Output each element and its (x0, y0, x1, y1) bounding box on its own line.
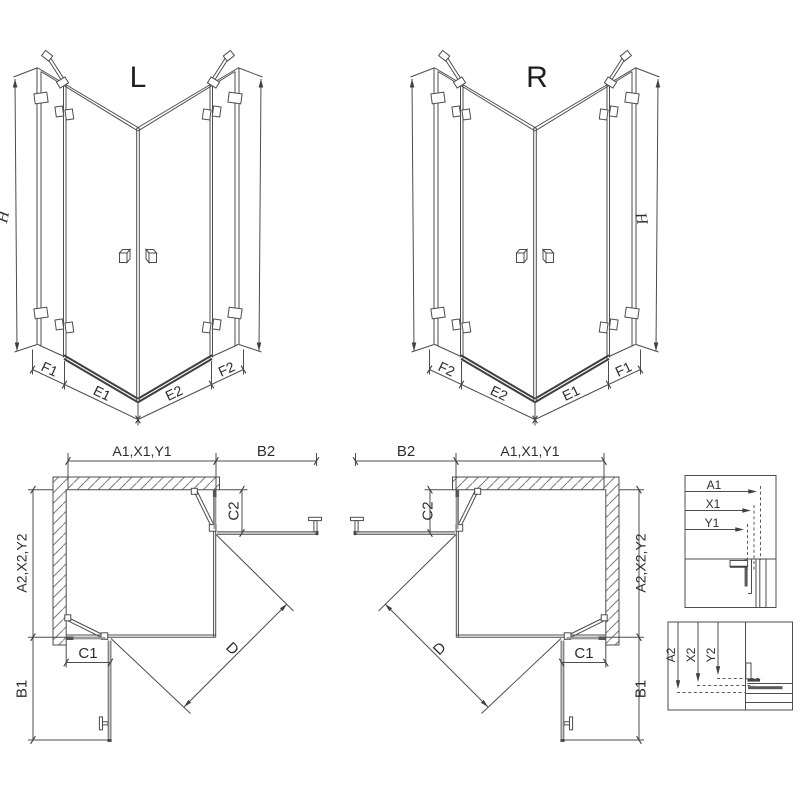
width-dim-left-plan: A1,X1,Y1 (112, 443, 171, 459)
left-plan-geometry (28, 453, 322, 744)
a1-detail-label: A1 (707, 478, 722, 492)
width-detail-box (685, 476, 776, 608)
x1-detail-label: X1 (706, 497, 721, 511)
d-dim-left-plan: D (222, 639, 242, 659)
left-variant-label: L (130, 61, 147, 94)
b1-dim-left-plan: B1 (14, 680, 31, 698)
width-dim-right-plan: A1,X1,Y1 (500, 443, 559, 459)
f1-dim-right: F1 (613, 358, 635, 379)
x2-detail-label: X2 (684, 647, 698, 662)
f2-dim-left: F2 (216, 358, 238, 379)
right-plan (351, 453, 645, 744)
f2-dim-right: F2 (436, 358, 458, 379)
b1-dim-right-plan: B1 (633, 680, 650, 698)
depth-detail-box (668, 622, 793, 710)
d-dim-right-plan: D (430, 639, 450, 659)
c2-dim-left-plan: C2 (226, 501, 243, 520)
left-plan (28, 453, 322, 744)
technical-drawing-sheet: L H F1 E1 E2 F2 R H F2 E2 E1 F1 A1,X1,Y1… (0, 0, 800, 800)
depth-detail-frame (668, 622, 793, 710)
y1-detail-label: Y1 (705, 516, 720, 530)
b2-dim-right-plan: B2 (397, 443, 415, 460)
c2-dim-right-plan: C2 (420, 501, 437, 520)
y2-detail-label: Y2 (704, 647, 718, 662)
a2-detail-label: A2 (664, 647, 678, 662)
right-plan-geometry (351, 453, 645, 744)
wall-hatch-right-plan (453, 477, 620, 645)
depth-dim-left-plan: A2,X2,Y2 (14, 533, 30, 592)
shower-enclosure-diagram: L H F1 E1 E2 F2 R H F2 E2 E1 F1 A1,X1,Y1… (0, 0, 800, 800)
wall-hatch-left-plan (53, 477, 220, 645)
width-detail-frame (685, 476, 776, 608)
f1-dim-left: F1 (39, 358, 61, 379)
b2-dim-left-plan: B2 (257, 443, 275, 460)
height-dim-label-left: H (0, 208, 13, 225)
depth-dim-right-plan: A2,X2,Y2 (633, 533, 649, 592)
right-variant-label: R (526, 61, 548, 94)
c1-dim-right-plan: C1 (574, 645, 593, 662)
c1-dim-left-plan: C1 (78, 645, 97, 662)
